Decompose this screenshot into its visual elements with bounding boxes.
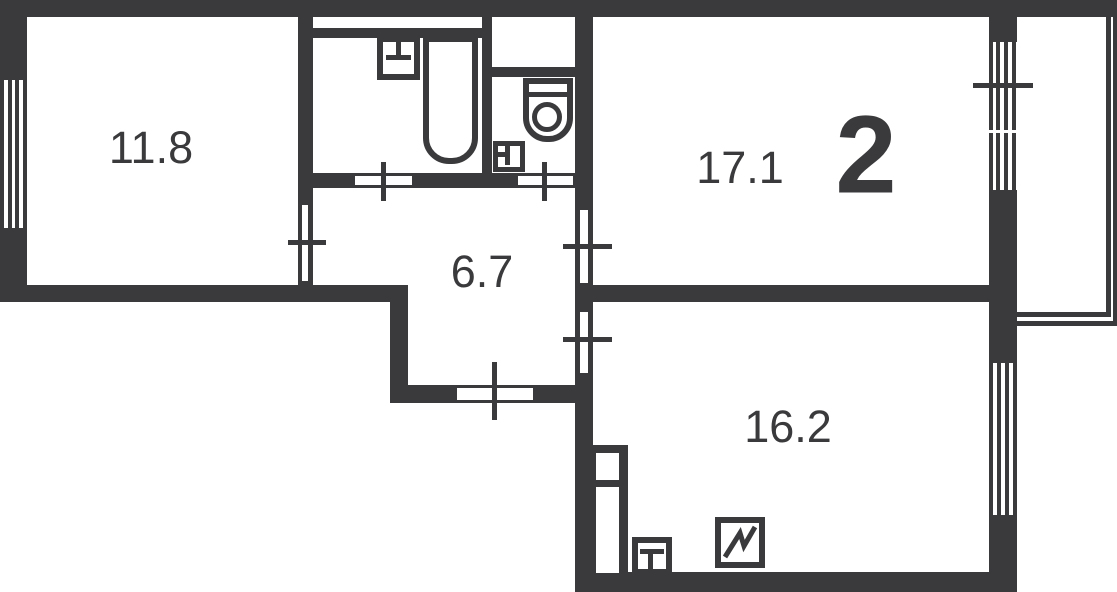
vent-duct-niche-top bbox=[596, 453, 619, 480]
balcony-edge-bottom-inner bbox=[1017, 312, 1111, 317]
kitchen-area-label: 16.2 bbox=[744, 401, 832, 453]
wall-hall-right bbox=[575, 17, 593, 592]
door-mark-wc bbox=[542, 162, 547, 201]
kitchen-sink-tap-icon bbox=[648, 549, 653, 570]
door-mark-entrance bbox=[492, 362, 497, 420]
door-mark-kitchen bbox=[563, 337, 612, 342]
toilet-tank-line-icon bbox=[526, 92, 570, 97]
room1-area-label: 11.8 bbox=[109, 122, 193, 174]
stove-zigzag-icon bbox=[721, 523, 759, 562]
wall-bathroom-wc bbox=[482, 17, 492, 188]
washbasin-tap-bar-icon bbox=[386, 55, 411, 60]
toilet-bowl-icon bbox=[532, 102, 562, 132]
wall-right-mid bbox=[989, 190, 1017, 363]
door-mark-balcony bbox=[973, 83, 1033, 88]
wall-right-top bbox=[989, 17, 1017, 42]
door-mark-room1 bbox=[288, 240, 326, 245]
balcony-edge-bottom-outer bbox=[1017, 321, 1117, 326]
door-mark-room2 bbox=[563, 244, 612, 249]
wall-left-upper bbox=[0, 17, 27, 80]
wall-top bbox=[0, 0, 1117, 17]
wall-wc-niche bbox=[492, 67, 575, 77]
room2-area-label: 17.1 bbox=[696, 142, 784, 194]
window-room1 bbox=[0, 80, 27, 228]
balcony-edge-right-outer bbox=[1113, 17, 1117, 326]
window-kitchen bbox=[989, 363, 1017, 515]
wall-room2-kitchen bbox=[593, 285, 989, 302]
window-room2 bbox=[989, 133, 1016, 190]
wall-kitchen-bottom bbox=[593, 572, 1017, 592]
balcony-edge-right-inner bbox=[1106, 17, 1111, 317]
bathtub-icon bbox=[423, 36, 478, 164]
stove-icon bbox=[715, 517, 765, 568]
door-mark-bathroom bbox=[381, 162, 386, 201]
wc-washbasin-tap-bar-icon bbox=[505, 143, 510, 165]
apartment-type-label: 2 bbox=[835, 92, 896, 219]
door-opening-kitchen bbox=[580, 312, 588, 373]
hallway-area-label: 6.7 bbox=[451, 246, 514, 298]
wall-bottom-room1 bbox=[0, 285, 408, 302]
floor-plan: 11.8 17.1 2 6.7 16.2 bbox=[0, 0, 1117, 592]
vent-duct-niche-bottom bbox=[596, 487, 619, 573]
